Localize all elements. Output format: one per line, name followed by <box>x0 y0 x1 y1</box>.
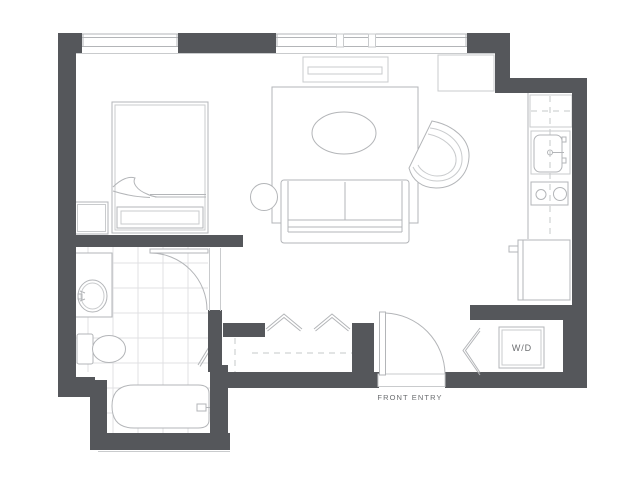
sofa <box>281 180 409 243</box>
tv-console <box>303 57 388 82</box>
window-mullion <box>369 34 376 47</box>
entry-closet-shelf-dashes <box>235 338 358 372</box>
coffee-table <box>312 112 376 154</box>
floor-plan-page: W/D FRONT ENTRY <box>0 0 640 480</box>
side-table <box>251 184 278 211</box>
washer-dryer-bifold-door <box>463 328 480 375</box>
toilet <box>77 334 126 364</box>
upper-cabinet <box>438 55 494 91</box>
refrigerator <box>509 240 570 300</box>
window-mullion <box>337 34 344 47</box>
bathtub <box>112 385 212 428</box>
bathroom-door <box>150 248 221 311</box>
washer-dryer-label: W/D <box>512 343 532 353</box>
entry-threshold <box>378 374 445 387</box>
entry-closet-bifold-doors <box>266 314 350 331</box>
kitchen-counter <box>528 93 572 239</box>
front-entry-label: FRONT ENTRY <box>377 393 442 402</box>
bathroom-vanity <box>74 253 112 317</box>
nightstand <box>75 202 108 234</box>
front-door <box>380 312 446 375</box>
floor-plan-drawing: W/D FRONT ENTRY <box>0 0 640 480</box>
washer-dryer-closet: W/D <box>499 327 544 368</box>
bed <box>112 102 208 233</box>
